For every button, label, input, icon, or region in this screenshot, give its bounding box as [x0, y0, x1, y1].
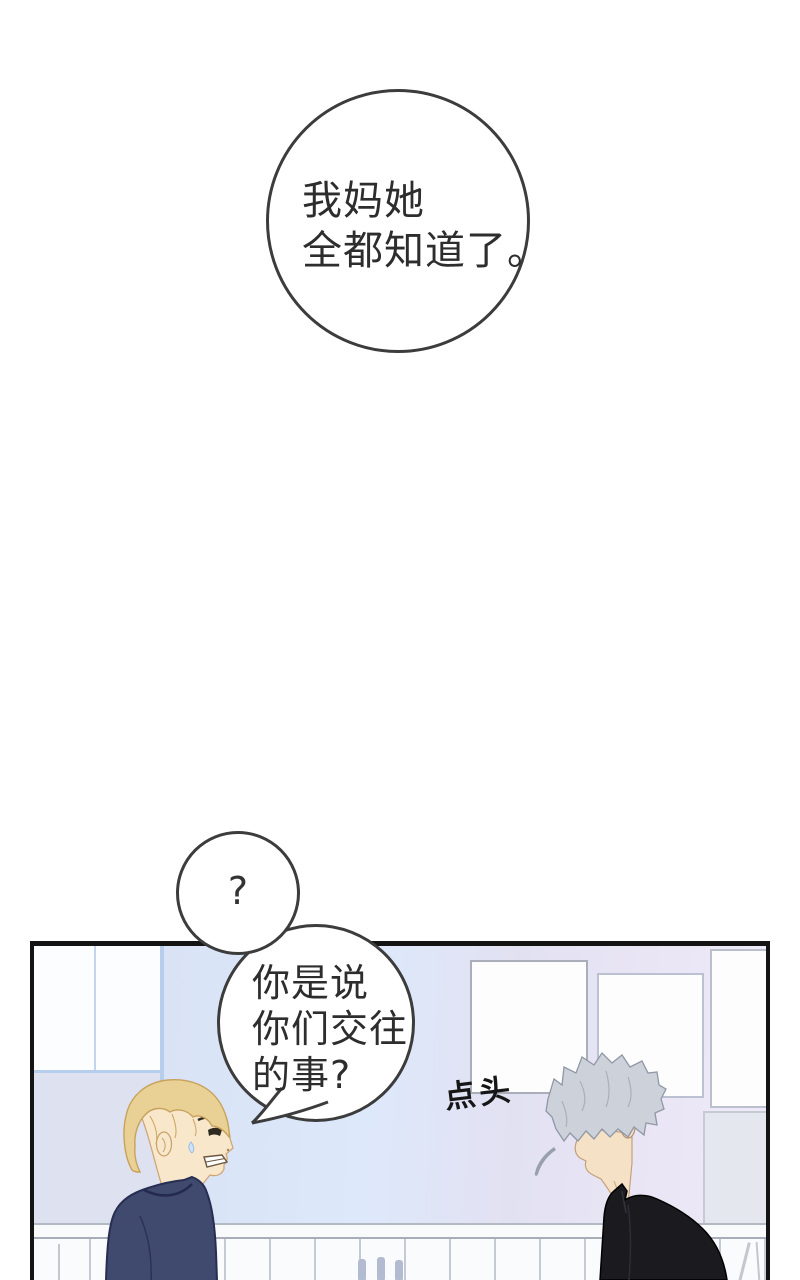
comic-page: 点头 我妈她 全都知道了。 你是说 你们交往 的事? ?: [0, 0, 800, 1280]
question-mark-text: ?: [228, 872, 248, 914]
marker-pen: [395, 1260, 403, 1280]
speech-line: 你是说: [252, 960, 408, 1006]
speech-bubble-reply-text: 你是说 你们交往 的事?: [252, 960, 408, 1098]
speech-line: 我妈她: [302, 176, 548, 226]
silver-haired-character: [510, 1041, 766, 1280]
marker-pen: [358, 1259, 366, 1280]
window-pane: [34, 946, 160, 1070]
speech-line: 你们交往: [252, 1006, 408, 1052]
marker-pen: [377, 1257, 385, 1280]
speech-line: 的事?: [252, 1052, 408, 1098]
speech-bubble-top-text: 我妈她 全都知道了。: [302, 176, 548, 276]
window-mullion: [94, 946, 96, 1070]
nod-motion-mark: [535, 1147, 556, 1176]
easel-leg: [58, 1244, 60, 1280]
speech-line: 全都知道了。: [302, 226, 548, 276]
speech-bubble-question: ?: [176, 831, 300, 955]
sfx-nod: 点头: [442, 1064, 517, 1117]
